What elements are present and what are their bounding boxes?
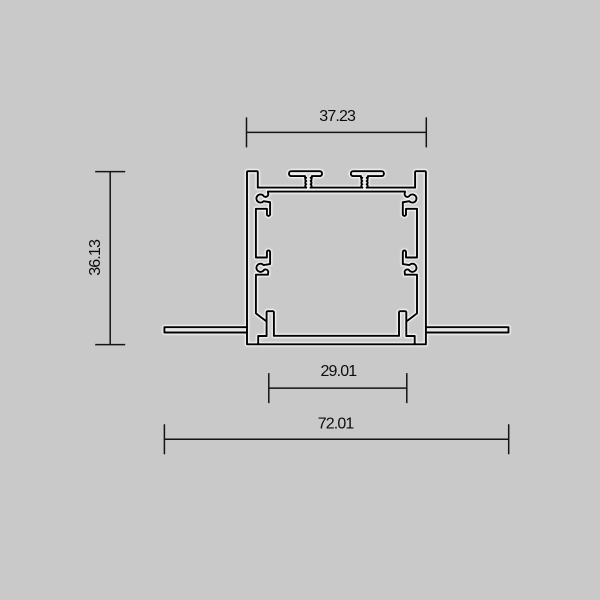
svg-text:37.23: 37.23 bbox=[319, 108, 356, 125]
svg-text:29.01: 29.01 bbox=[321, 363, 358, 380]
svg-text:72.01: 72.01 bbox=[318, 416, 355, 433]
svg-text:36.13: 36.13 bbox=[87, 239, 104, 276]
